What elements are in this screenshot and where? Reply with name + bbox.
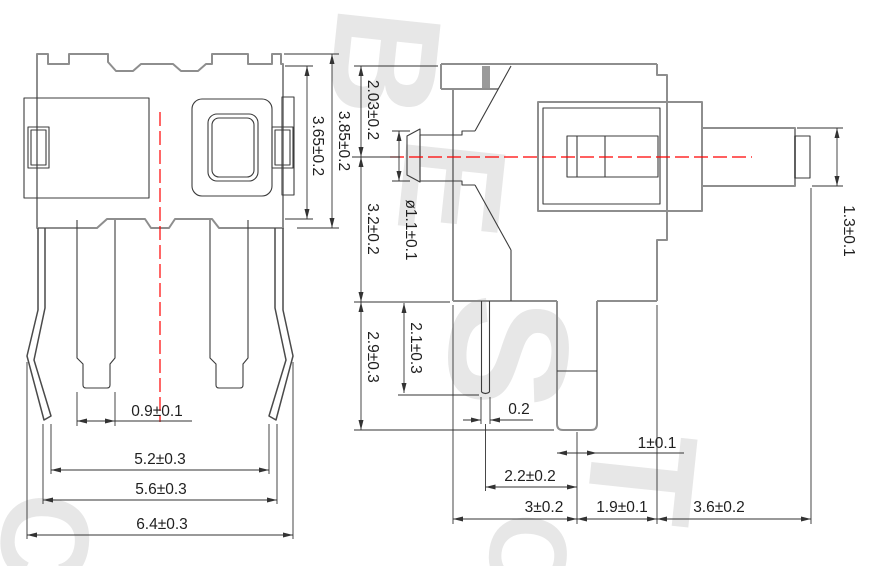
dim-side-pin-to-leg: 2.2±0.2: [504, 468, 556, 485]
button-outer: [208, 114, 258, 181]
front-leg-right: [269, 228, 293, 420]
dim-side-base-to-leg-end: 2.9±0.3: [364, 331, 381, 383]
front-pin-right: [210, 220, 248, 388]
front-dimensions: 3.65±0.2 3.85±0.2 0.9±0.1 5.2±0.3 5.6±0.…: [27, 54, 352, 539]
front-leg-left: [27, 228, 51, 420]
dim-side-stem-length: 3.6±0.2: [693, 499, 745, 516]
dim-side-stem-height: 1.3±0.1: [840, 205, 857, 257]
dim-front-total-height: 3.85±0.2: [335, 111, 352, 171]
front-pin-left: [77, 220, 115, 388]
dim-front-leg-span-outer: 5.6±0.3: [135, 481, 187, 498]
drawing-sheet: B E S T O C 3.65±0.2: [0, 0, 869, 566]
watermark-letter: S: [408, 286, 609, 419]
front-plate: [24, 98, 149, 198]
watermark-letter: C: [0, 486, 118, 566]
dim-front-leg-span-inner: 5.2±0.3: [134, 451, 186, 468]
button-inner: [212, 118, 254, 177]
side-stem-tip: [795, 136, 810, 178]
dim-side-pin-thickness: 0.2: [508, 401, 530, 418]
front-plate-left-tab-inner: [31, 130, 46, 165]
ext-line: [797, 128, 843, 186]
side-housing-inner: [543, 108, 660, 204]
side-top-pin-stub: [482, 66, 490, 88]
dim-front-body-height: 3.65±0.2: [309, 116, 326, 176]
dim-side-top-to-center: 2.03±0.2: [364, 80, 381, 140]
dim-side-center-to-base: 3.2±0.2: [364, 203, 381, 255]
front-view: [24, 54, 294, 422]
dim-front-total-width: 6.4±0.3: [136, 516, 188, 533]
dim-side-leg-to-face: 1.9±0.1: [596, 499, 648, 516]
dim-side-base-to-pin-end: 2.1±0.3: [407, 322, 424, 374]
dim-side-pin-diameter: ø1.1±0.1: [402, 199, 419, 260]
dim-side-body-depth: 3±0.2: [525, 499, 564, 516]
dim-front-pin-width: 0.9±0.1: [131, 403, 183, 420]
technical-drawing: B E S T O C 3.65±0.2: [0, 0, 869, 566]
